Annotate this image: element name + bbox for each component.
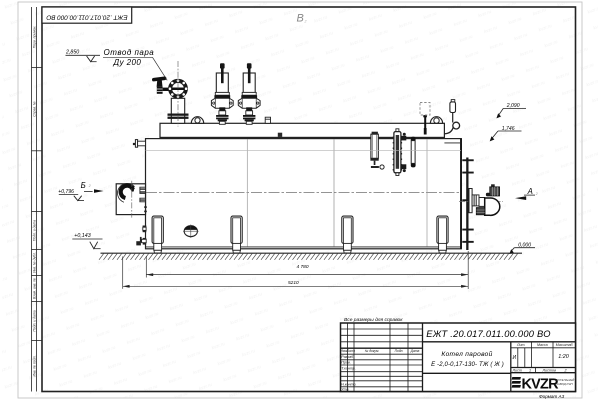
svg-text:2: 2 — [304, 20, 307, 24]
svg-text:Подп. и дата: Подп. и дата — [33, 310, 37, 331]
svg-text:Перв. примен.: Перв. примен. — [33, 26, 37, 49]
svg-text:Разраб.: Разраб. — [341, 355, 354, 359]
svg-text:2,850: 2,850 — [65, 49, 79, 55]
svg-text:1:20: 1:20 — [558, 354, 569, 360]
svg-text:4 780: 4 780 — [297, 264, 309, 270]
svg-text:Н.контр.: Н.контр. — [341, 382, 356, 386]
svg-text:Е -2,0-0,17-130- ТЖ ( Ж ): Е -2,0-0,17-130- ТЖ ( Ж ) — [431, 362, 504, 368]
svg-text:Утв.: Утв. — [341, 388, 349, 392]
svg-text:Формат А3: Формат А3 — [539, 394, 565, 399]
svg-text:+0,143: +0,143 — [74, 233, 90, 239]
svg-text:Инв. № подл.: Инв. № подл. — [33, 355, 37, 376]
svg-text:2: 2 — [564, 369, 567, 373]
svg-text:Листов: Листов — [542, 369, 557, 373]
svg-text:Отвод пара: Отвод пара — [104, 48, 155, 57]
svg-text:ЗАВОД РЭП: ЗАВОД РЭП — [556, 382, 573, 386]
svg-text:№ докум.: № докум. — [365, 349, 380, 353]
svg-text:В: В — [297, 13, 304, 25]
svg-text:Ду 200: Ду 200 — [113, 58, 142, 67]
svg-text:Пров.: Пров. — [341, 361, 350, 365]
svg-text:Взам. инв. №: Взам. инв. № — [33, 278, 37, 299]
svg-text:Справ. №: Справ. № — [33, 101, 37, 117]
svg-text:Лист: Лист — [512, 369, 523, 373]
svg-text:ЕЖТ .20.017.011.00.000 ВО: ЕЖТ .20.017.011.00.000 ВО — [426, 329, 551, 339]
svg-text:Б: Б — [81, 181, 86, 190]
svg-text:Масса: Масса — [537, 343, 548, 347]
svg-text:Лит.: Лит. — [516, 343, 525, 347]
svg-text:Т.контр.: Т.контр. — [341, 367, 356, 371]
svg-text:А: А — [527, 187, 533, 196]
svg-text:КОТЕЛЬНЫЙ: КОТЕЛЬНЫЙ — [556, 378, 575, 382]
svg-text:KVZR: KVZR — [522, 376, 560, 392]
svg-text:Дата: Дата — [410, 349, 420, 353]
svg-text:Подп.: Подп. — [395, 349, 404, 353]
svg-text:5210: 5210 — [288, 280, 299, 286]
svg-text:2: 2 — [88, 184, 91, 188]
svg-text:Масштаб: Масштаб — [556, 343, 574, 347]
svg-text:Инв. № дубл.: Инв. № дубл. — [33, 252, 37, 273]
svg-text:И: И — [513, 355, 517, 361]
svg-text:Котел паровой: Котел паровой — [441, 350, 492, 358]
svg-text:1: 1 — [529, 369, 531, 373]
svg-text:2: 2 — [535, 192, 538, 196]
svg-text:ЕЖТ .20.017.011.00.000 ВО: ЕЖТ .20.017.011.00.000 ВО — [46, 13, 127, 20]
svg-text:Лист: Лист — [346, 349, 356, 353]
svg-text:Подп. и дата: Подп. и дата — [33, 220, 37, 241]
